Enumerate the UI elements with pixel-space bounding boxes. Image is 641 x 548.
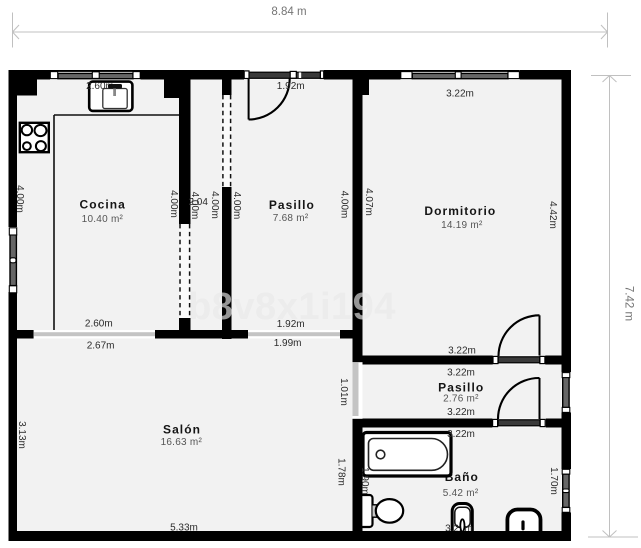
svg-text:b8v8x1i194: b8v8x1i194 [188,286,396,328]
svg-text:1.70m: 1.70m [548,467,559,495]
svg-text:5.42 m²: 5.42 m² [443,488,479,499]
svg-text:3.22m: 3.22m [447,368,475,379]
svg-text:2.76 m²: 2.76 m² [443,394,479,405]
svg-text:5.33m: 5.33m [170,523,198,534]
svg-text:4.00m: 4.00m [338,191,349,219]
svg-text:Pasillo: Pasillo [438,381,484,395]
svg-text:1.01m: 1.01m [338,378,349,406]
svg-text:4.07m: 4.07m [363,188,374,216]
svg-text:2.60m: 2.60m [85,319,113,330]
svg-text:4.42m: 4.42m [547,201,558,229]
svg-text:7.68 m²: 7.68 m² [273,213,309,224]
svg-text:16.63 m²: 16.63 m² [161,437,203,448]
svg-text:Cocina: Cocina [80,198,126,212]
svg-text:1.90m: 1.90m [359,467,370,495]
svg-text:4.00m: 4.00m [189,192,200,220]
svg-text:4.00m: 4.00m [168,190,179,218]
svg-text:2.67m: 2.67m [87,341,115,352]
svg-text:3.22m: 3.22m [447,407,475,418]
svg-text:1.92m: 1.92m [277,81,305,92]
svg-text:1.99m: 1.99m [274,338,302,349]
svg-text:1.78m: 1.78m [336,458,347,486]
svg-text:3.22m: 3.22m [447,429,475,440]
svg-text:Pasillo: Pasillo [269,198,315,212]
svg-text:Salón: Salón [163,423,201,437]
svg-text:Dormitorio: Dormitorio [424,204,496,218]
svg-text:14.19 m²: 14.19 m² [441,220,483,231]
svg-text:3.22m: 3.22m [448,346,476,357]
svg-text:4.00m: 4.00m [231,192,242,220]
svg-text:4.00m: 4.00m [209,191,220,219]
svg-text:7.42 m: 7.42 m [622,286,634,321]
svg-text:3.22m: 3.22m [446,89,474,100]
svg-text:4.00m: 4.00m [14,185,25,213]
svg-text:10.40 m²: 10.40 m² [82,214,124,225]
svg-text:8.84 m: 8.84 m [271,6,306,18]
svg-text:3.13m: 3.13m [16,421,27,449]
